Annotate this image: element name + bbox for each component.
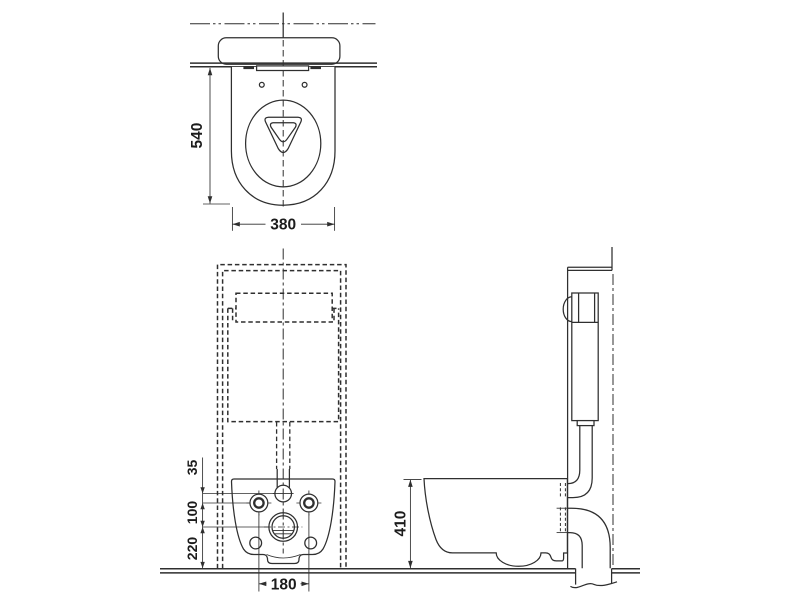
- pipe-break-wave: [570, 582, 617, 588]
- dim-540: 540: [189, 68, 230, 204]
- dim-220-label: 220: [184, 537, 200, 561]
- cistern-outlet-step: [577, 421, 594, 426]
- dim-380-label: 380: [270, 217, 296, 234]
- technical-drawing: 540 380: [0, 0, 800, 600]
- drain-elbow-outer: [568, 508, 610, 568]
- top-view: 540 380: [189, 13, 377, 234]
- dim-100-label: 100: [184, 501, 200, 525]
- seat-hinge-bar: [257, 66, 309, 71]
- dim-35-label: 35: [184, 460, 200, 476]
- floor-line: [160, 569, 640, 573]
- seat-bolt-left: [259, 82, 264, 87]
- drain-elbow-inner: [568, 533, 582, 569]
- mounting-hole-right: [305, 537, 317, 549]
- dim-410: 410: [393, 480, 422, 569]
- dim-380: 380: [232, 207, 334, 234]
- seat-bolt-right: [302, 82, 307, 87]
- dim-180-label: 180: [271, 576, 297, 593]
- flush-pipe-side-outer: [568, 426, 580, 484]
- cistern-lid-top: [218, 38, 340, 64]
- access-panel-hidden: [236, 293, 332, 322]
- bowl-side: [424, 479, 567, 567]
- front-view: 35 100 220 180: [184, 249, 346, 594]
- side-view: 410: [393, 247, 617, 588]
- mounting-hole-left: [250, 537, 262, 549]
- dim-540-label: 540: [189, 123, 206, 149]
- soil-pipe-break: [570, 569, 617, 588]
- dim-410-label: 410: [393, 511, 410, 537]
